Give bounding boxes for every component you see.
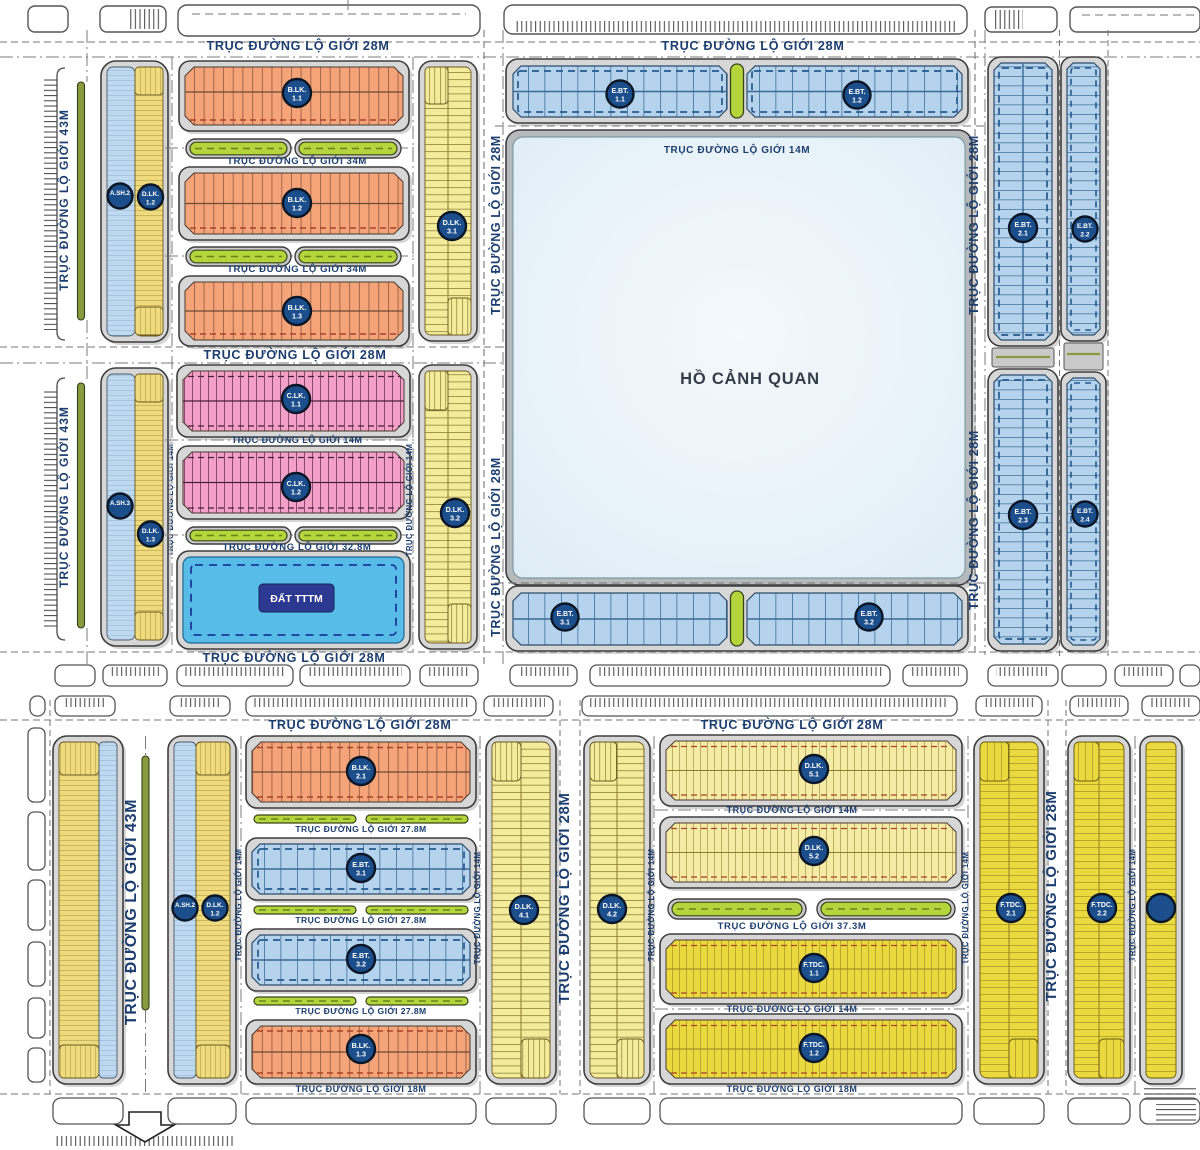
svg-text:D.LK.: D.LK. (142, 191, 159, 198)
svg-text:TRỤC ĐƯỜNG LỘ GIỚI 28M: TRỤC ĐƯỜNG LỘ GIỚI 28M (661, 38, 844, 53)
svg-text:1.3: 1.3 (146, 536, 155, 543)
svg-text:TRỤC ĐƯỜNG LỘ GIỚI 18M: TRỤC ĐƯỜNG LỘ GIỚI 18M (727, 1083, 858, 1094)
svg-text:TRỤC ĐƯỜNG LỘ GIỚI 14M: TRỤC ĐƯỜNG LỘ GIỚI 14M (727, 804, 858, 815)
svg-text:TRỤC ĐƯỜNG LỘ GIỚI 28M: TRỤC ĐƯỜNG LỘ GIỚI 28M (268, 717, 451, 732)
svg-text:E.BT.: E.BT. (1077, 508, 1093, 515)
svg-text:1.2: 1.2 (852, 97, 862, 104)
svg-text:2.2: 2.2 (1097, 910, 1107, 917)
svg-text:1.1: 1.1 (291, 399, 301, 408)
svg-text:TRỤC ĐƯỜNG LỘ GIỚI 14M: TRỤC ĐƯỜNG LỘ GIỚI 14M (405, 444, 414, 557)
svg-text:TRỤC ĐƯỜNG LỘ GIỚI 14M: TRỤC ĐƯỜNG LỘ GIỚI 14M (727, 1003, 858, 1014)
svg-text:TRỤC ĐƯỜNG LỘ GIỚI 28M: TRỤC ĐƯỜNG LỘ GIỚI 28M (203, 347, 386, 362)
svg-text:TRỤC ĐƯỜNG LỘ GIỚI 34M: TRỤC ĐƯỜNG LỘ GIỚI 34M (227, 263, 367, 275)
svg-text:1.2: 1.2 (292, 203, 302, 212)
svg-text:2.1: 2.1 (356, 771, 366, 780)
svg-text:1.1: 1.1 (615, 96, 625, 103)
svg-text:A.SH.3: A.SH.3 (110, 500, 131, 507)
svg-text:2.1: 2.1 (1018, 230, 1028, 237)
svg-text:E.BT.: E.BT. (1014, 222, 1031, 229)
svg-text:TRỤC ĐƯỜNG LỘ GIỚI 28M: TRỤC ĐƯỜNG LỘ GIỚI 28M (1042, 791, 1060, 1002)
svg-text:E.BT.: E.BT. (611, 88, 628, 95)
svg-text:F.TDC.: F.TDC. (803, 962, 825, 969)
svg-text:TRỤC ĐƯỜNG LỘ GIỚI 14M: TRỤC ĐƯỜNG LỘ GIỚI 14M (234, 849, 243, 962)
svg-text:2.1: 2.1 (1006, 910, 1016, 917)
svg-text:3.1: 3.1 (560, 619, 570, 626)
svg-text:TRỤC ĐƯỜNG LỘ GIỚI 28M: TRỤC ĐƯỜNG LỘ GIỚI 28M (206, 38, 389, 53)
svg-text:5.2: 5.2 (809, 851, 819, 860)
svg-text:E.BT.: E.BT. (1077, 223, 1093, 230)
svg-text:A.SH.2: A.SH.2 (110, 190, 131, 197)
svg-text:TRỤC ĐƯỜNG LỘ GIỚI 43M: TRỤC ĐƯỜNG LỘ GIỚI 43M (121, 799, 140, 1025)
svg-text:TRỤC ĐƯỜNG LỘ GIỚI 28M: TRỤC ĐƯỜNG LỘ GIỚI 28M (555, 793, 573, 1004)
svg-text:TRỤC ĐƯỜNG LỘ GIỚI 34M: TRỤC ĐƯỜNG LỘ GIỚI 34M (227, 155, 367, 167)
svg-text:D.LK.: D.LK. (206, 902, 223, 909)
svg-text:2.3: 2.3 (1018, 517, 1028, 524)
svg-text:1.2: 1.2 (291, 487, 301, 496)
svg-text:D.LK.: D.LK. (142, 528, 159, 535)
svg-text:3.2: 3.2 (864, 619, 874, 626)
svg-text:TRỤC ĐƯỜNG LỘ GIỚI 43M: TRỤC ĐƯỜNG LỘ GIỚI 43M (56, 406, 71, 588)
svg-text:TRỤC ĐƯỜNG LỘ GIỚI 27.8M: TRỤC ĐƯỜNG LỘ GIỚI 27.8M (295, 1005, 426, 1016)
svg-text:TRỤC ĐƯỜNG LỘ GIỚI 43M: TRỤC ĐƯỜNG LỘ GIỚI 43M (56, 109, 71, 291)
svg-text:E.BT.: E.BT. (848, 89, 865, 96)
svg-text:1.2: 1.2 (210, 910, 219, 917)
svg-text:5.1: 5.1 (809, 769, 819, 778)
svg-text:1.1: 1.1 (809, 970, 819, 977)
svg-text:ĐẤT TTTM: ĐẤT TTTM (270, 592, 323, 605)
svg-text:TRỤC ĐƯỜNG LỘ GIỚI 27.8M: TRỤC ĐƯỜNG LỘ GIỚI 27.8M (295, 914, 426, 925)
svg-text:HỒ CẢNH QUAN: HỒ CẢNH QUAN (680, 369, 820, 388)
svg-text:1.3: 1.3 (292, 311, 302, 320)
svg-text:TRỤC ĐƯỜNG LỘ GIỚI 14M: TRỤC ĐƯỜNG LỘ GIỚI 14M (232, 434, 363, 445)
svg-text:E.BT.: E.BT. (860, 611, 877, 618)
svg-text:E.BT.: E.BT. (556, 611, 573, 618)
svg-text:TRỤC ĐƯỜNG LỘ GIỚI 14M: TRỤC ĐƯỜNG LỘ GIỚI 14M (473, 852, 482, 965)
svg-text:TRỤC ĐƯỜNG LỘ GIỚI 14M: TRỤC ĐƯỜNG LỘ GIỚI 14M (1128, 849, 1137, 962)
svg-text:1.1: 1.1 (292, 93, 302, 102)
svg-text:3.2: 3.2 (356, 959, 366, 968)
svg-text:TRỤC ĐƯỜNG LỘ GIỚI 28M: TRỤC ĐƯỜNG LỘ GIỚI 28M (488, 135, 503, 315)
svg-text:1.2: 1.2 (146, 199, 155, 206)
svg-text:3.1: 3.1 (447, 226, 457, 235)
svg-text:TRỤC ĐƯỜNG LỘ GIỚI 18M: TRỤC ĐƯỜNG LỘ GIỚI 18M (296, 1083, 427, 1094)
svg-text:3.1: 3.1 (356, 868, 366, 877)
svg-text:TRỤC ĐƯỜNG LỘ GIỚI 14M: TRỤC ĐƯỜNG LỘ GIỚI 14M (647, 849, 656, 962)
svg-text:TRỤC ĐƯỜNG LỘ GIỚI 28M: TRỤC ĐƯỜNG LỘ GIỚI 28M (700, 717, 883, 732)
svg-text:TRỤC ĐƯỜNG LỘ GIỚI 28M: TRỤC ĐƯỜNG LỘ GIỚI 28M (966, 135, 981, 315)
svg-text:4.2: 4.2 (607, 909, 617, 918)
svg-text:F.TDC.: F.TDC. (1091, 902, 1113, 909)
svg-text:TRỤC ĐƯỜNG LỘ GIỚI 37.3M: TRỤC ĐƯỜNG LỘ GIỚI 37.3M (718, 920, 867, 932)
svg-text:1.3: 1.3 (356, 1049, 366, 1058)
svg-text:TRỤC ĐƯỜNG LỘ GIỚI 28M: TRỤC ĐƯỜNG LỘ GIỚI 28M (966, 430, 981, 610)
svg-text:TRỤC ĐƯỜNG LỘ GIỚI 14M: TRỤC ĐƯỜNG LỘ GIỚI 14M (961, 852, 970, 965)
svg-text:TRỤC ĐƯỜNG LỘ GIỚI 27.8M: TRỤC ĐƯỜNG LỘ GIỚI 27.8M (295, 823, 426, 834)
svg-text:A.SH.2: A.SH.2 (175, 902, 196, 909)
svg-text:F.TDC.: F.TDC. (803, 1042, 825, 1049)
svg-text:TRỤC ĐƯỜNG LỘ GIỚI 28M: TRỤC ĐƯỜNG LỘ GIỚI 28M (202, 650, 385, 665)
svg-text:TRỤC ĐƯỜNG LỘ GIỚI 28M: TRỤC ĐƯỜNG LỘ GIỚI 28M (488, 457, 503, 637)
svg-text:F.TDC.: F.TDC. (1000, 902, 1022, 909)
svg-text:3.2: 3.2 (450, 513, 460, 522)
svg-text:2.2: 2.2 (1080, 231, 1089, 238)
svg-text:2.4: 2.4 (1080, 516, 1089, 523)
svg-text:1.2: 1.2 (809, 1050, 819, 1057)
svg-text:TRỤC ĐƯỜNG LỘ GIỚI 14M: TRỤC ĐƯỜNG LỘ GIỚI 14M (664, 143, 810, 156)
svg-text:E.BT.: E.BT. (1014, 509, 1031, 516)
svg-text:4.1: 4.1 (519, 910, 529, 919)
